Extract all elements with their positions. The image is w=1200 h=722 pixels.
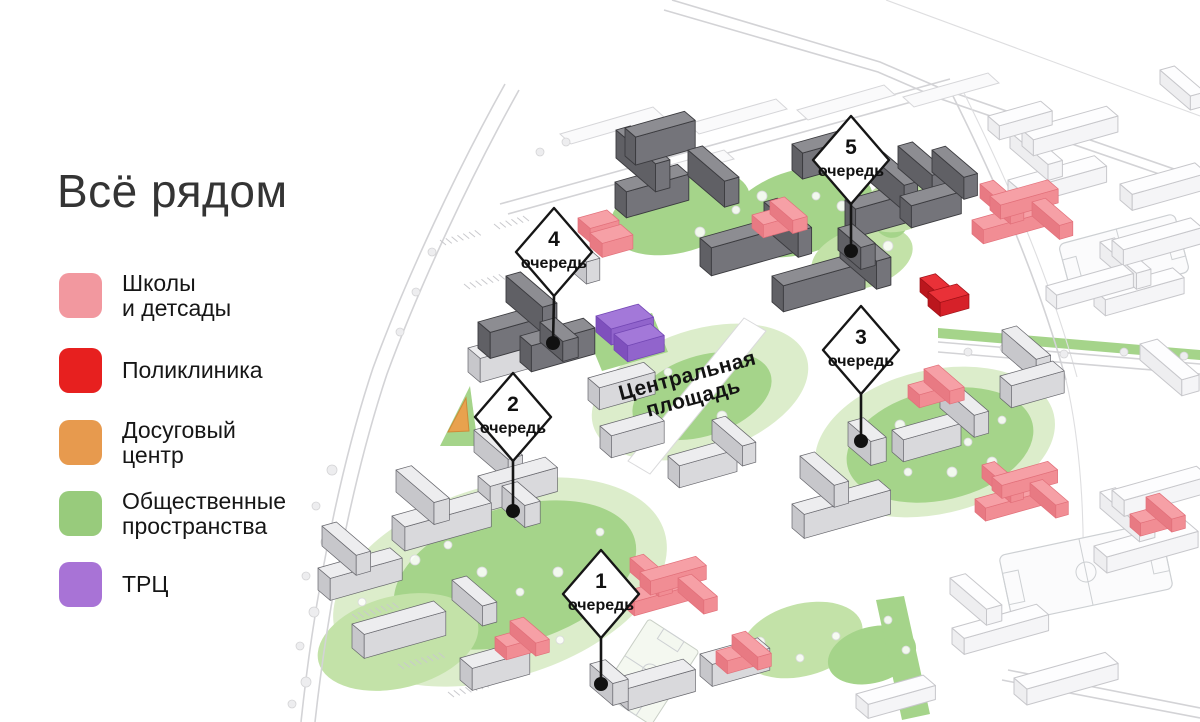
building bbox=[950, 574, 1002, 626]
mall-color-swatch bbox=[58, 561, 103, 608]
polyclinic-color-swatch bbox=[58, 347, 103, 394]
schools-color-swatch bbox=[58, 272, 103, 319]
building bbox=[678, 574, 717, 614]
legend-item-polyclinic: Поликлиника bbox=[58, 347, 263, 394]
legend-label: Досуговыйцентр bbox=[122, 418, 236, 468]
legend-label: Поликлиника bbox=[122, 358, 263, 383]
page-title: Всё рядом bbox=[57, 164, 288, 218]
legend-label: ТРЦ bbox=[122, 572, 168, 597]
leisure-color-swatch bbox=[58, 419, 103, 466]
svg-text:очередь: очередь bbox=[818, 163, 884, 180]
svg-text:очередь: очередь bbox=[480, 420, 546, 437]
legend-item-mall: ТРЦ bbox=[58, 561, 168, 608]
building-leisure-center bbox=[448, 398, 469, 432]
svg-text:5: 5 bbox=[845, 136, 857, 159]
legend-item-leisure-center: Досуговыйцентр bbox=[58, 419, 236, 466]
svg-text:2: 2 bbox=[507, 393, 519, 416]
building bbox=[1030, 480, 1068, 519]
building bbox=[1000, 361, 1064, 408]
legend-item-public-spaces: Общественныепространства bbox=[58, 490, 286, 537]
svg-text:1: 1 bbox=[595, 570, 607, 593]
svg-text:4: 4 bbox=[548, 228, 560, 251]
masterplan-slide: Центральная площадь 1 очередь 2 очередь … bbox=[0, 0, 1200, 722]
svg-text:3: 3 bbox=[855, 326, 867, 349]
legend-label: Общественныепространства bbox=[122, 489, 286, 539]
building bbox=[1120, 163, 1200, 211]
svg-text:очередь: очередь bbox=[828, 353, 894, 370]
svg-text:очередь: очередь bbox=[568, 597, 634, 614]
building-polyclinic bbox=[920, 274, 969, 317]
svg-text:очередь: очередь bbox=[521, 255, 587, 272]
legend-label: Школыи детсады bbox=[122, 271, 231, 321]
public-spaces-color-swatch bbox=[58, 490, 103, 537]
building bbox=[1032, 198, 1073, 239]
building bbox=[1014, 652, 1118, 705]
legend-item-schools: Школыи детсады bbox=[58, 272, 231, 319]
